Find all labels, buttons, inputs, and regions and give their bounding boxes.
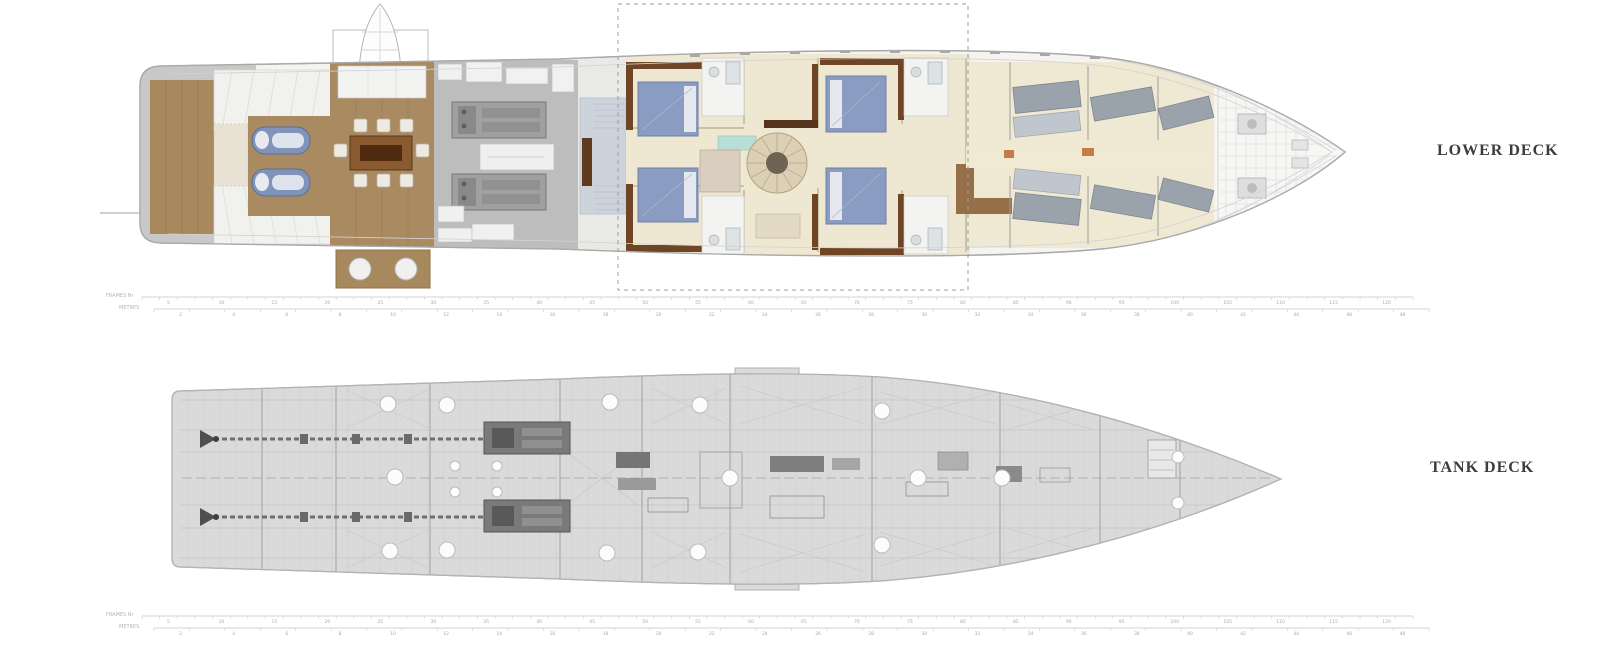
svg-text:2: 2 xyxy=(179,312,182,318)
svg-text:16: 16 xyxy=(550,312,556,318)
svg-text:32: 32 xyxy=(975,312,981,318)
svg-text:65: 65 xyxy=(801,619,807,625)
svg-text:60: 60 xyxy=(748,619,754,625)
svg-text:100: 100 xyxy=(1170,300,1179,306)
svg-text:2: 2 xyxy=(179,631,182,637)
svg-text:20: 20 xyxy=(324,619,330,625)
svg-text:35: 35 xyxy=(483,619,489,625)
svg-text:15: 15 xyxy=(272,619,278,625)
svg-text:26: 26 xyxy=(815,631,821,637)
svg-text:44: 44 xyxy=(1293,312,1299,318)
svg-text:70: 70 xyxy=(854,300,860,306)
svg-text:20: 20 xyxy=(324,300,330,306)
svg-text:42: 42 xyxy=(1240,631,1246,637)
svg-text:6: 6 xyxy=(285,631,288,637)
svg-text:38: 38 xyxy=(1134,312,1140,318)
svg-text:18: 18 xyxy=(603,312,609,318)
svg-text:28: 28 xyxy=(868,631,874,637)
svg-text:40: 40 xyxy=(1187,312,1193,318)
svg-text:48: 48 xyxy=(1400,631,1406,637)
svg-text:10: 10 xyxy=(390,312,396,318)
lower-deck-label: LOWER DECK xyxy=(1437,142,1559,160)
svg-text:26: 26 xyxy=(815,312,821,318)
ruler1-metres-label: METRES xyxy=(119,305,139,311)
svg-text:8: 8 xyxy=(339,631,342,637)
svg-text:30: 30 xyxy=(921,631,927,637)
svg-text:10: 10 xyxy=(219,619,225,625)
svg-text:40: 40 xyxy=(536,619,542,625)
svg-text:28: 28 xyxy=(868,312,874,318)
svg-text:60: 60 xyxy=(748,300,754,306)
svg-text:55: 55 xyxy=(695,300,701,306)
tank-deck-label: TANK DECK xyxy=(1430,459,1534,477)
svg-text:55: 55 xyxy=(695,619,701,625)
svg-text:80: 80 xyxy=(960,619,966,625)
svg-text:30: 30 xyxy=(430,619,436,625)
svg-text:30: 30 xyxy=(921,312,927,318)
svg-text:36: 36 xyxy=(1081,631,1087,637)
svg-text:14: 14 xyxy=(496,312,502,318)
svg-text:115: 115 xyxy=(1329,300,1338,306)
yacht-ga-drawing: 5101520253035404550556065707580859095100… xyxy=(0,0,1600,660)
svg-text:4: 4 xyxy=(232,312,235,318)
svg-text:30: 30 xyxy=(430,300,436,306)
svg-text:25: 25 xyxy=(377,619,383,625)
svg-text:35: 35 xyxy=(483,300,489,306)
svg-text:18: 18 xyxy=(603,631,609,637)
svg-text:46: 46 xyxy=(1346,312,1352,318)
svg-text:40: 40 xyxy=(536,300,542,306)
ruler1-frames-label: FRAMES Nr xyxy=(106,293,134,299)
svg-text:20: 20 xyxy=(656,312,662,318)
svg-text:42: 42 xyxy=(1240,312,1246,318)
lower-deck-interior xyxy=(138,50,1345,261)
svg-text:45: 45 xyxy=(589,300,595,306)
svg-text:90: 90 xyxy=(1066,300,1072,306)
svg-text:5: 5 xyxy=(167,619,170,625)
svg-text:50: 50 xyxy=(642,300,648,306)
svg-text:24: 24 xyxy=(762,312,768,318)
svg-text:12: 12 xyxy=(443,631,449,637)
svg-text:14: 14 xyxy=(496,631,502,637)
svg-text:95: 95 xyxy=(1119,300,1125,306)
svg-text:120: 120 xyxy=(1382,300,1391,306)
svg-text:44: 44 xyxy=(1293,631,1299,637)
svg-text:38: 38 xyxy=(1134,631,1140,637)
svg-text:70: 70 xyxy=(854,619,860,625)
svg-text:45: 45 xyxy=(589,619,595,625)
svg-text:10: 10 xyxy=(219,300,225,306)
svg-text:65: 65 xyxy=(801,300,807,306)
svg-text:6: 6 xyxy=(285,312,288,318)
svg-text:12: 12 xyxy=(443,312,449,318)
svg-text:5: 5 xyxy=(167,300,170,306)
svg-text:8: 8 xyxy=(339,312,342,318)
svg-text:46: 46 xyxy=(1346,631,1352,637)
svg-text:85: 85 xyxy=(1013,619,1019,625)
svg-text:34: 34 xyxy=(1028,631,1034,637)
svg-text:80: 80 xyxy=(960,300,966,306)
svg-text:110: 110 xyxy=(1276,300,1285,306)
svg-text:110: 110 xyxy=(1276,619,1285,625)
svg-text:115: 115 xyxy=(1329,619,1338,625)
svg-text:32: 32 xyxy=(975,631,981,637)
svg-text:24: 24 xyxy=(762,631,768,637)
svg-text:120: 120 xyxy=(1382,619,1391,625)
svg-text:40: 40 xyxy=(1187,631,1193,637)
svg-text:15: 15 xyxy=(272,300,278,306)
svg-text:36: 36 xyxy=(1081,312,1087,318)
ruler2-frames-label: FRAMES Nr xyxy=(106,612,134,618)
svg-text:22: 22 xyxy=(709,631,715,637)
svg-text:105: 105 xyxy=(1223,300,1232,306)
svg-text:90: 90 xyxy=(1066,619,1072,625)
svg-text:75: 75 xyxy=(907,619,913,625)
svg-text:100: 100 xyxy=(1170,619,1179,625)
svg-text:85: 85 xyxy=(1013,300,1019,306)
svg-text:25: 25 xyxy=(377,300,383,306)
ga-plan-canvas: 5101520253035404550556065707580859095100… xyxy=(0,0,1600,660)
svg-text:22: 22 xyxy=(709,312,715,318)
svg-text:75: 75 xyxy=(907,300,913,306)
svg-text:10: 10 xyxy=(390,631,396,637)
svg-text:16: 16 xyxy=(550,631,556,637)
ruler2-metres-label: METRES xyxy=(119,624,139,630)
svg-text:34: 34 xyxy=(1028,312,1034,318)
svg-text:20: 20 xyxy=(656,631,662,637)
svg-text:95: 95 xyxy=(1119,619,1125,625)
svg-text:105: 105 xyxy=(1223,619,1232,625)
svg-text:48: 48 xyxy=(1400,312,1406,318)
svg-text:50: 50 xyxy=(642,619,648,625)
svg-text:4: 4 xyxy=(232,631,235,637)
